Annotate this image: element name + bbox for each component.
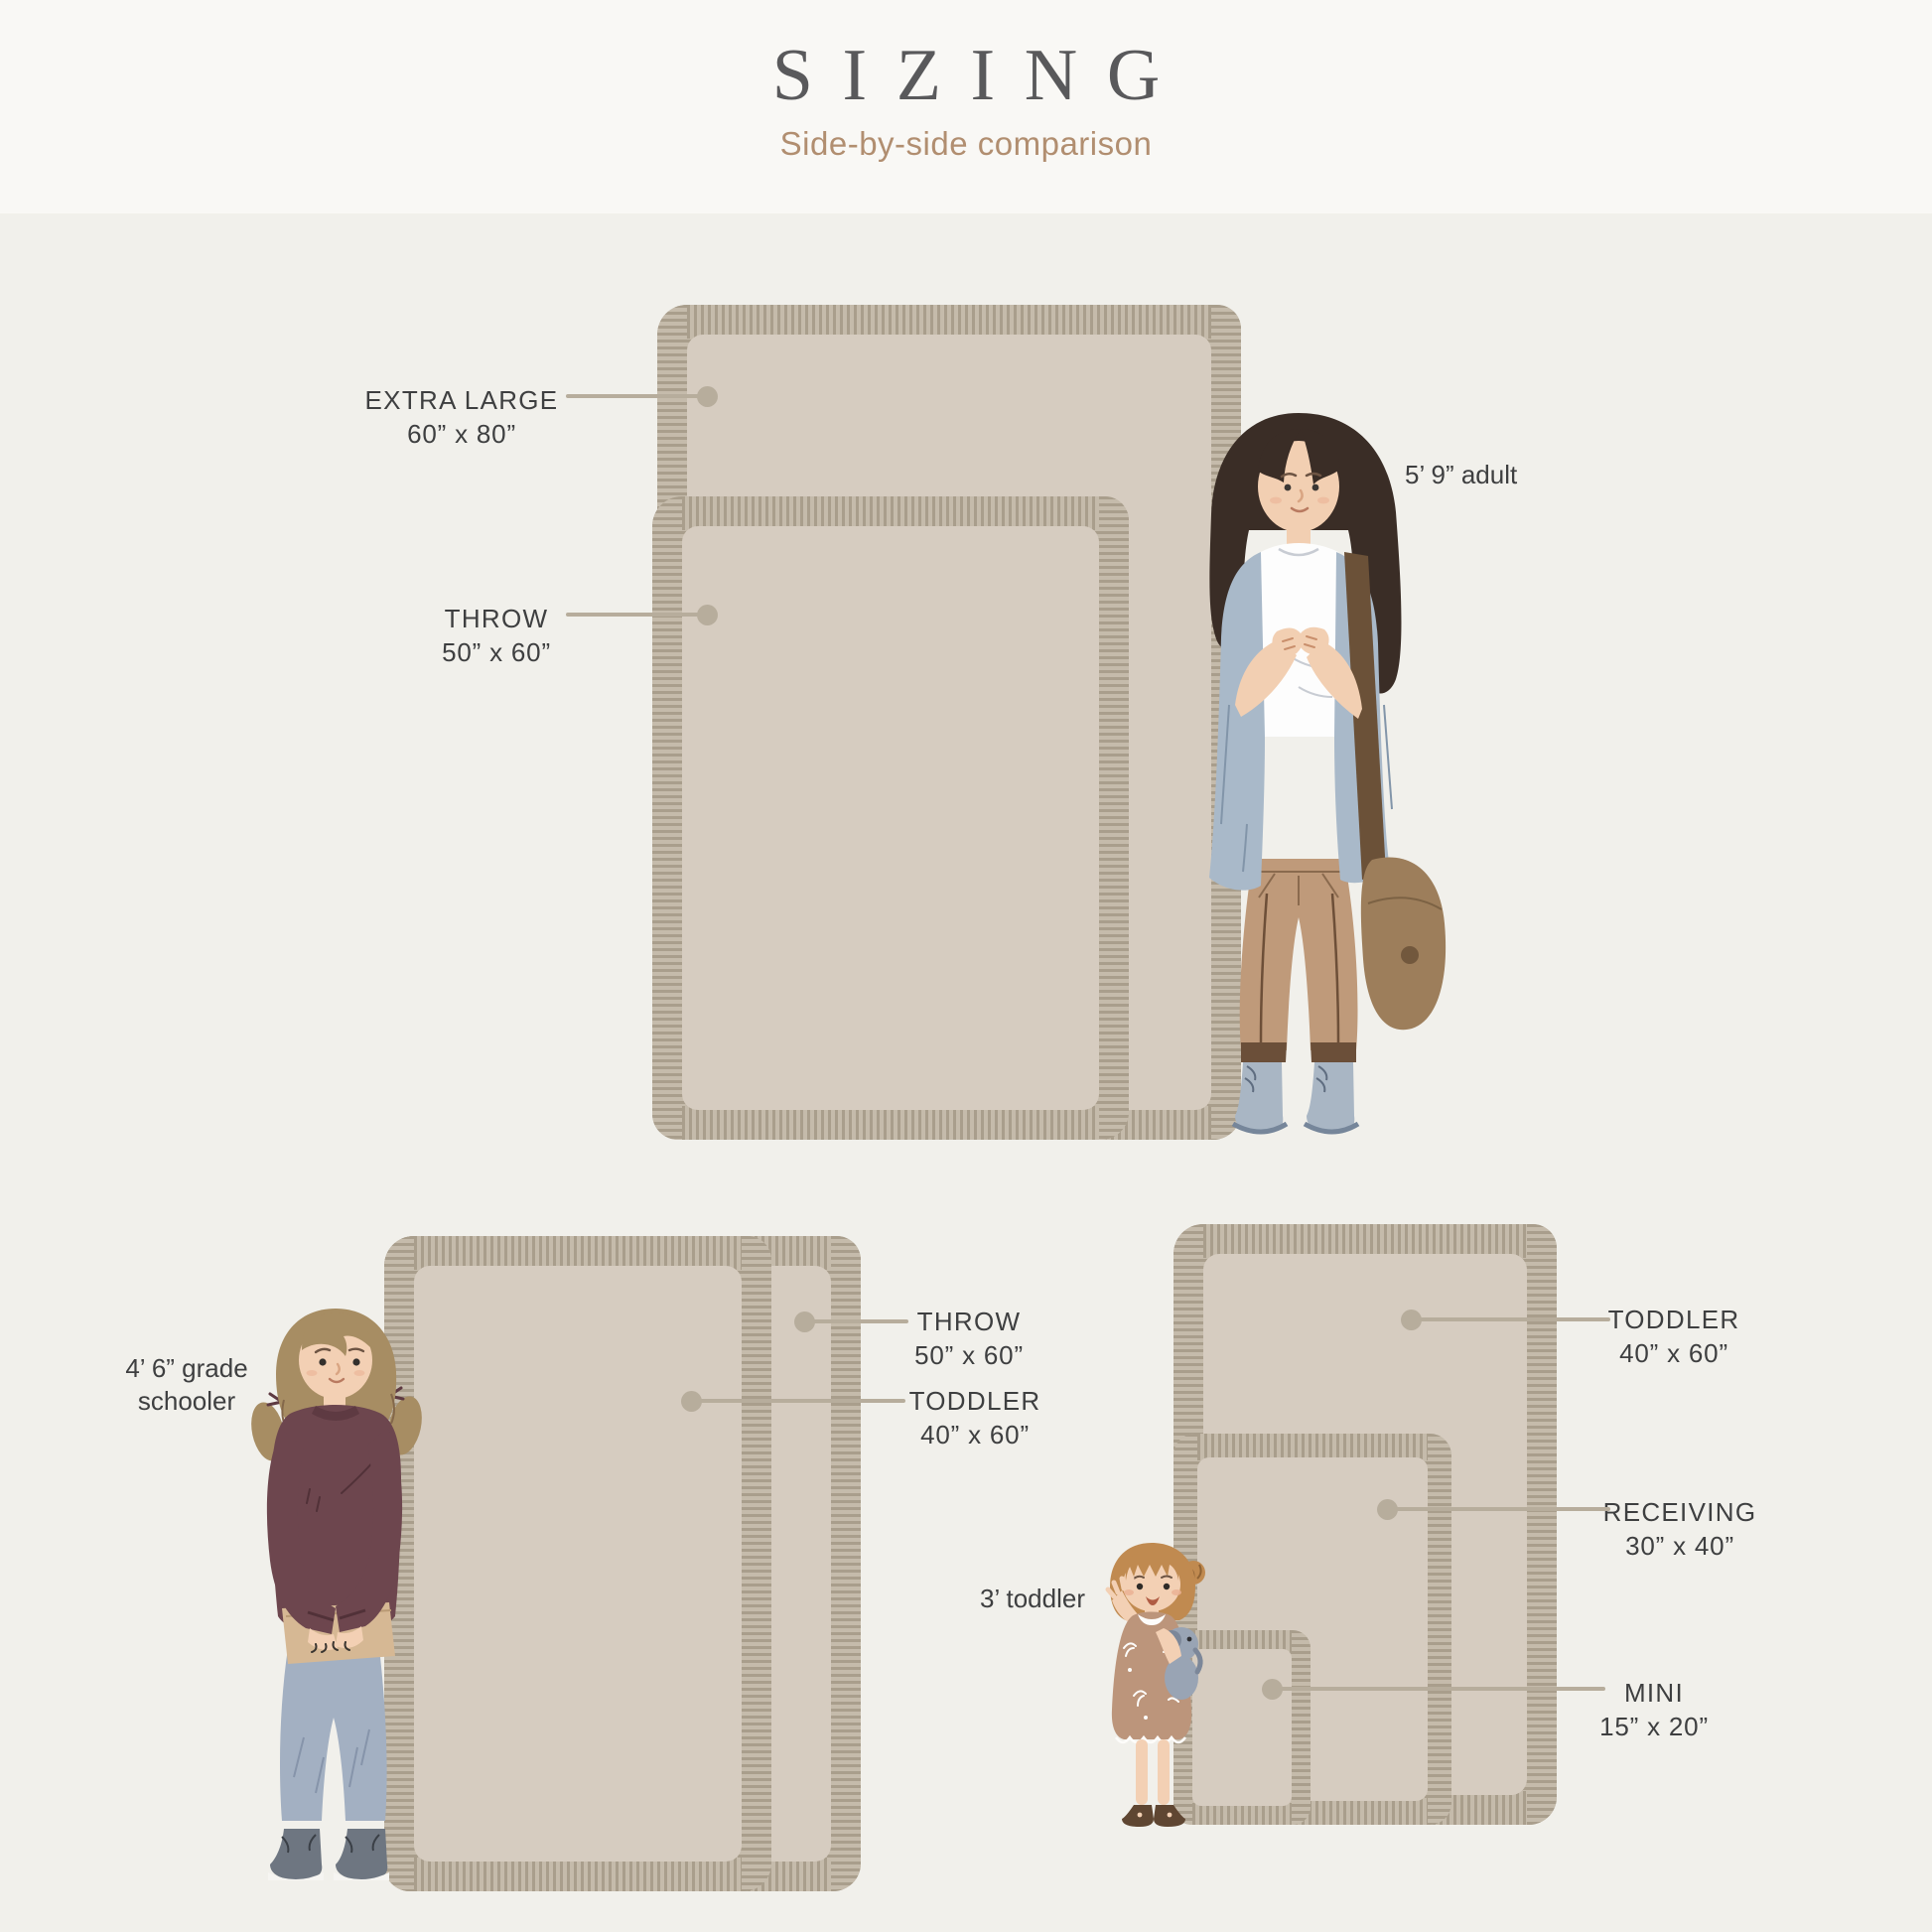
label-mini-dims: 15” x 20” <box>1515 1710 1793 1743</box>
label-toddler-br-name: TODDLER <box>1608 1305 1740 1334</box>
fringe-edge <box>414 1236 742 1270</box>
adult-woman-illustration <box>1150 407 1467 1142</box>
label-toddler-bl-name: TODDLER <box>909 1386 1041 1416</box>
label-throw-bottom-left: THROW 50” x 60” <box>830 1305 1108 1372</box>
fringe-edge <box>1203 1224 1527 1258</box>
page-subtitle: Side-by-side comparison <box>0 125 1932 163</box>
blanket-throw-top <box>652 496 1129 1140</box>
fringe-edge <box>682 1106 1099 1140</box>
fringe-edge <box>682 496 1099 530</box>
label-toddler-bottom-right: TODDLER 40” x 60” <box>1535 1303 1813 1370</box>
label-mini-name: MINI <box>1624 1678 1684 1708</box>
leader-dot <box>1377 1499 1398 1520</box>
label-extra-large-name: EXTRA LARGE <box>365 385 559 415</box>
page-title: SIZING <box>0 34 1932 118</box>
label-throw-top-dims: 50” x 60” <box>357 635 635 669</box>
leader-line-throw-top <box>566 613 711 617</box>
label-throw-top-name: THROW <box>445 604 549 633</box>
fringe-edge <box>1197 1434 1428 1460</box>
toddler-girl-illustration <box>1082 1529 1223 1835</box>
leader-dot <box>1262 1679 1283 1700</box>
label-extra-large-dims: 60” x 80” <box>323 417 601 451</box>
fringe-edge <box>1425 1434 1451 1825</box>
label-extra-large: EXTRA LARGE 60” x 80” <box>323 383 601 451</box>
label-throw-bl-dims: 50” x 60” <box>830 1338 1108 1372</box>
leader-line-toddler-bottom-left <box>688 1399 905 1403</box>
leader-line-receiving <box>1384 1507 1610 1511</box>
fringe-edge <box>738 1236 771 1891</box>
leader-dot <box>1401 1310 1422 1330</box>
label-receiving-name: RECEIVING <box>1603 1497 1757 1527</box>
grade-schooler-girl-illustration <box>224 1281 445 1896</box>
leader-line-toddler-bottom-right <box>1408 1317 1610 1321</box>
label-receiving: RECEIVING 30” x 40” <box>1541 1495 1819 1563</box>
leader-dot <box>794 1311 815 1332</box>
blanket-pad <box>414 1266 742 1862</box>
label-toddler-bl-dims: 40” x 60” <box>836 1418 1114 1451</box>
fringe-edge <box>1095 496 1129 1140</box>
fringe-edge <box>414 1858 742 1891</box>
sizing-infographic: SIZING Side-by-side comparison EXTRA LAR… <box>0 0 1932 1932</box>
leader-dot <box>697 386 718 407</box>
leader-dot <box>697 605 718 625</box>
label-toddler-br-dims: 40” x 60” <box>1535 1336 1813 1370</box>
leader-line-throw-bottom-left <box>801 1319 908 1323</box>
label-toddler-bottom-left: TODDLER 40” x 60” <box>836 1384 1114 1451</box>
blanket-pad <box>682 526 1099 1110</box>
label-throw-bl-name: THROW <box>917 1307 1022 1336</box>
label-receiving-dims: 30” x 40” <box>1541 1529 1819 1563</box>
fringe-edge <box>687 305 1211 339</box>
leader-dot <box>681 1391 702 1412</box>
fringe-edge <box>652 496 686 1140</box>
fringe-edge <box>1289 1630 1311 1825</box>
leader-line-extra-large <box>566 394 711 398</box>
leader-line-mini <box>1269 1687 1605 1691</box>
